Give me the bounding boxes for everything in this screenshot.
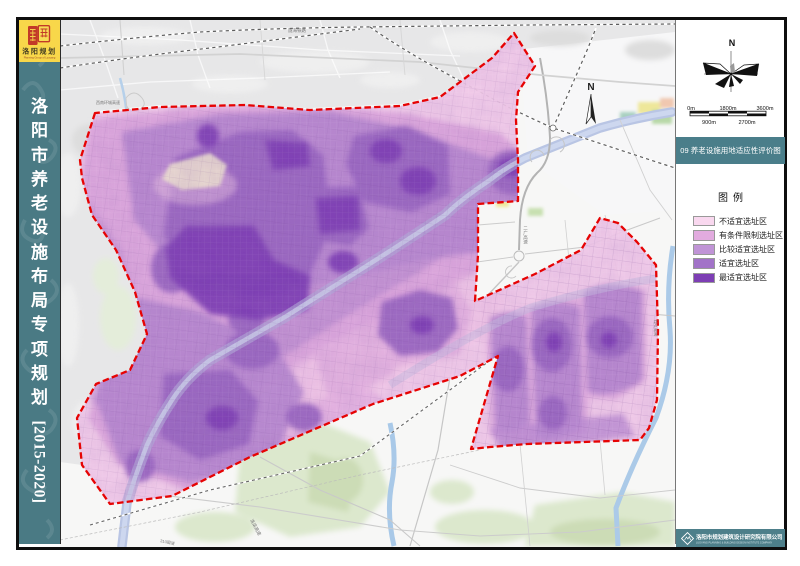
svg-text:N: N (587, 82, 594, 93)
svg-text:郑卢高速: 郑卢高速 (654, 319, 659, 337)
svg-text:陇海铁路: 陇海铁路 (288, 27, 306, 34)
svg-text:Planning Group of Luoyang: Planning Group of Luoyang (24, 56, 56, 60)
svg-text:900m: 900m (702, 120, 716, 126)
svg-text:N: N (729, 38, 736, 48)
svg-text:洛阳规划: 洛阳规划 (22, 47, 56, 56)
svg-text:二广高速: 二广高速 (523, 226, 529, 246)
svg-text:2700m: 2700m (738, 120, 755, 126)
svg-text:西南环城高速: 西南环城高速 (96, 99, 120, 105)
